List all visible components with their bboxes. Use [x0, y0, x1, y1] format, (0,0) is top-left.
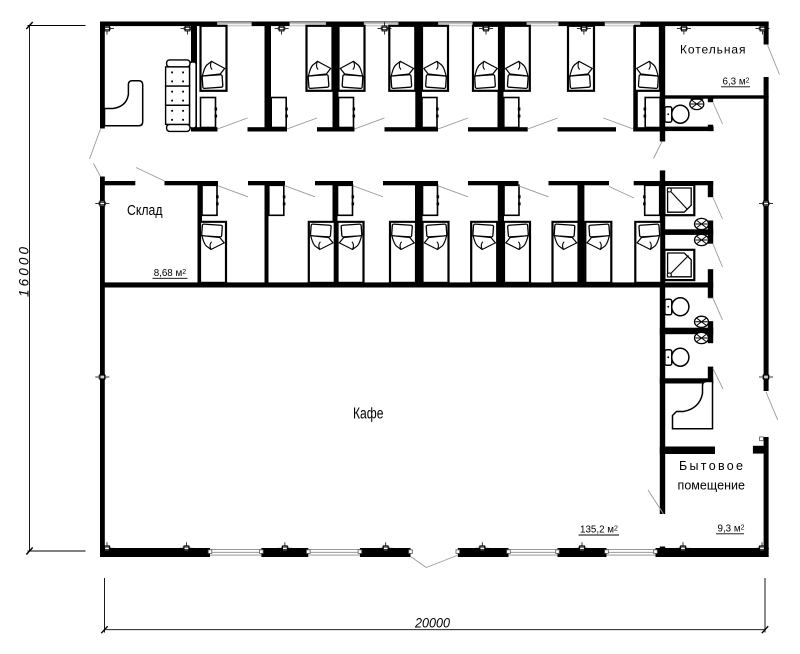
svg-text:8,68 м2: 8,68 м2	[154, 268, 187, 279]
svg-text:Котельная: Котельная	[680, 43, 746, 57]
svg-text:Склад: Склад	[127, 202, 163, 219]
svg-text:9,3 м2: 9,3 м2	[718, 524, 745, 535]
svg-text:помещение: помещение	[678, 479, 746, 493]
svg-text:Кафе: Кафе	[353, 405, 384, 422]
svg-text:Бытовое: Бытовое	[679, 459, 743, 473]
svg-text:20000: 20000	[414, 614, 450, 630]
svg-text:6,3 м2: 6,3 м2	[723, 77, 750, 88]
svg-text:135,2 м2: 135,2 м2	[580, 525, 618, 536]
